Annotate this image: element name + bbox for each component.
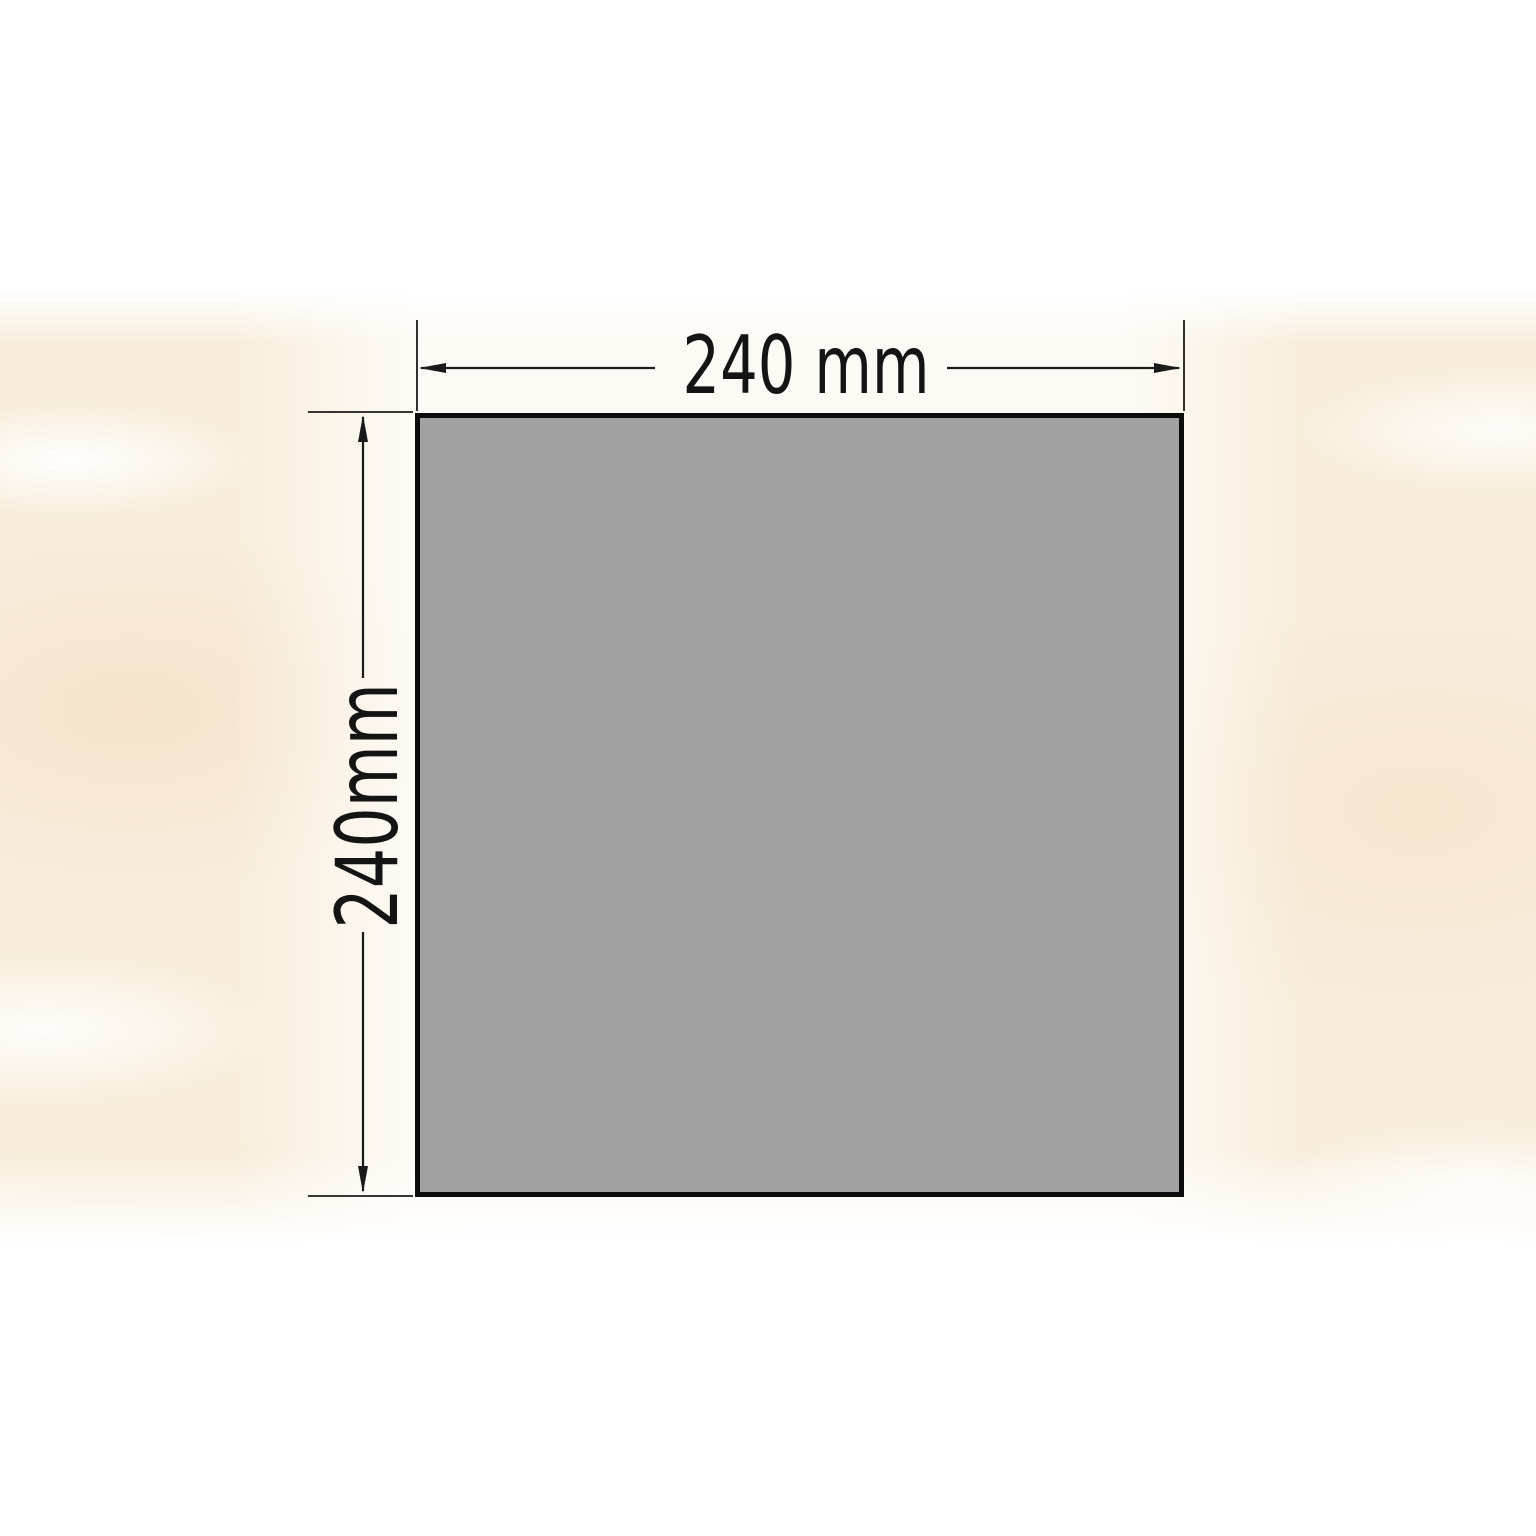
width-dimension-label: 240 mm xyxy=(682,326,929,406)
width-arrow-left-icon xyxy=(419,363,446,373)
width-arrow-right-icon xyxy=(1154,363,1181,373)
height-arrow-bottom-icon xyxy=(358,1166,368,1193)
product-dimension-diagram: 240 mm 240mm xyxy=(0,0,1536,1536)
dimension-lines-layer xyxy=(0,0,1536,1536)
height-dimension-label: 240mm xyxy=(325,683,411,928)
height-arrow-top-icon xyxy=(358,415,368,442)
